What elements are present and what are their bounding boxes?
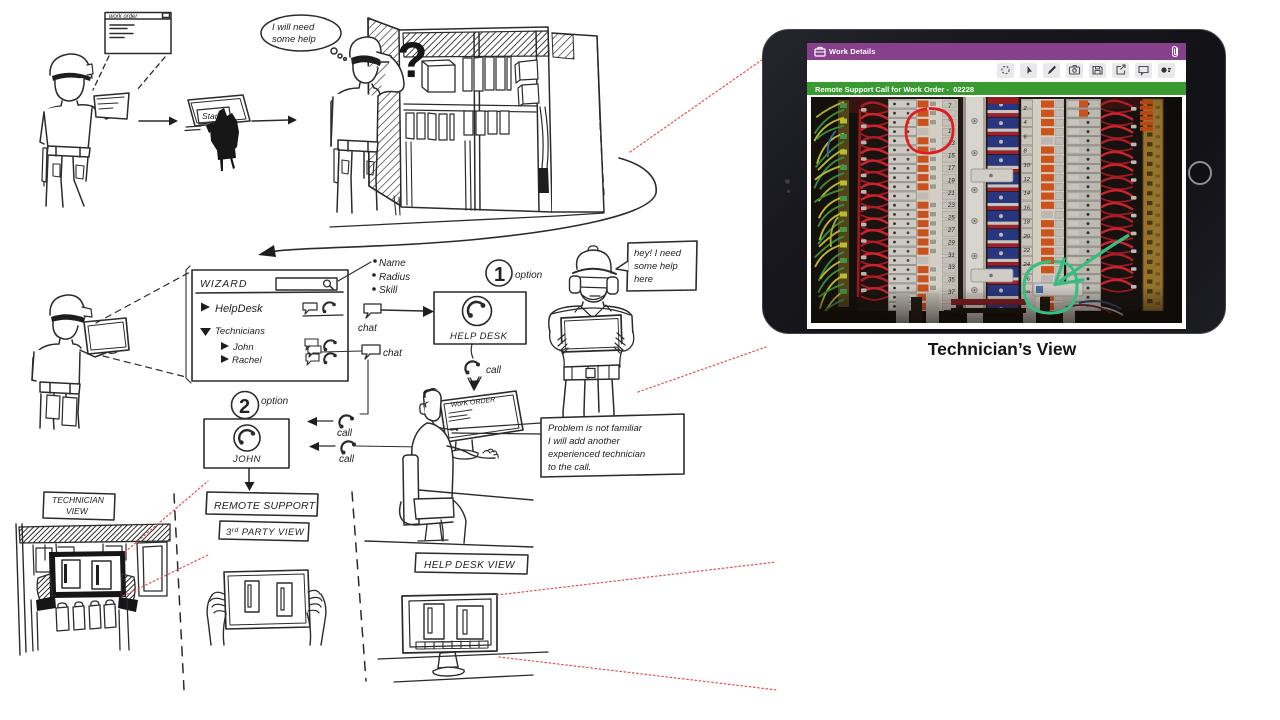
svg-text:2: 2 (239, 396, 250, 418)
svg-text:call: call (486, 365, 502, 376)
svg-text:option: option (261, 396, 289, 407)
svg-text:here: here (634, 274, 653, 285)
svg-text:VIEW: VIEW (66, 506, 89, 516)
svg-text:hey! I need: hey! I need (634, 248, 682, 259)
svg-text:HELP DESK: HELP DESK (450, 331, 508, 342)
svg-text:Radius: Radius (379, 272, 410, 283)
svg-text:Skill: Skill (379, 285, 398, 296)
svg-text:to the call.: to the call. (548, 462, 591, 473)
svg-text:experienced technician: experienced technician (548, 449, 645, 460)
svg-text:HELP DESK VIEW: HELP DESK VIEW (424, 560, 516, 571)
svg-text:chat: chat (358, 323, 378, 334)
svg-text:1: 1 (494, 264, 505, 286)
svg-text:Technicians: Technicians (215, 326, 265, 337)
svg-text:some help: some help (272, 34, 316, 45)
svg-text:REMOTE SUPPORT: REMOTE SUPPORT (214, 500, 317, 512)
svg-text:option: option (515, 270, 543, 281)
svg-text:?: ? (397, 32, 428, 88)
svg-text:some help: some help (634, 261, 678, 272)
svg-text:Name: Name (379, 258, 406, 269)
svg-text:I will add another: I will add another (548, 436, 621, 447)
svg-text:3rd PARTY VIEW: 3rd PARTY VIEW (226, 527, 305, 538)
svg-text:WIZARD: WIZARD (200, 278, 247, 290)
svg-text:TECHNICIAN: TECHNICIAN (52, 495, 105, 505)
svg-text:call: call (339, 454, 355, 465)
svg-text:work order: work order (109, 14, 138, 20)
svg-text:I will need: I will need (272, 22, 315, 33)
svg-text:call: call (337, 428, 353, 439)
svg-text:HelpDesk: HelpDesk (215, 303, 263, 315)
svg-text:JOHN: JOHN (232, 454, 261, 465)
svg-text:Rachel: Rachel (232, 355, 262, 366)
svg-text:Problem is not familiar: Problem is not familiar (548, 423, 643, 434)
svg-text:John: John (232, 342, 254, 353)
svg-text:chat: chat (383, 348, 403, 359)
